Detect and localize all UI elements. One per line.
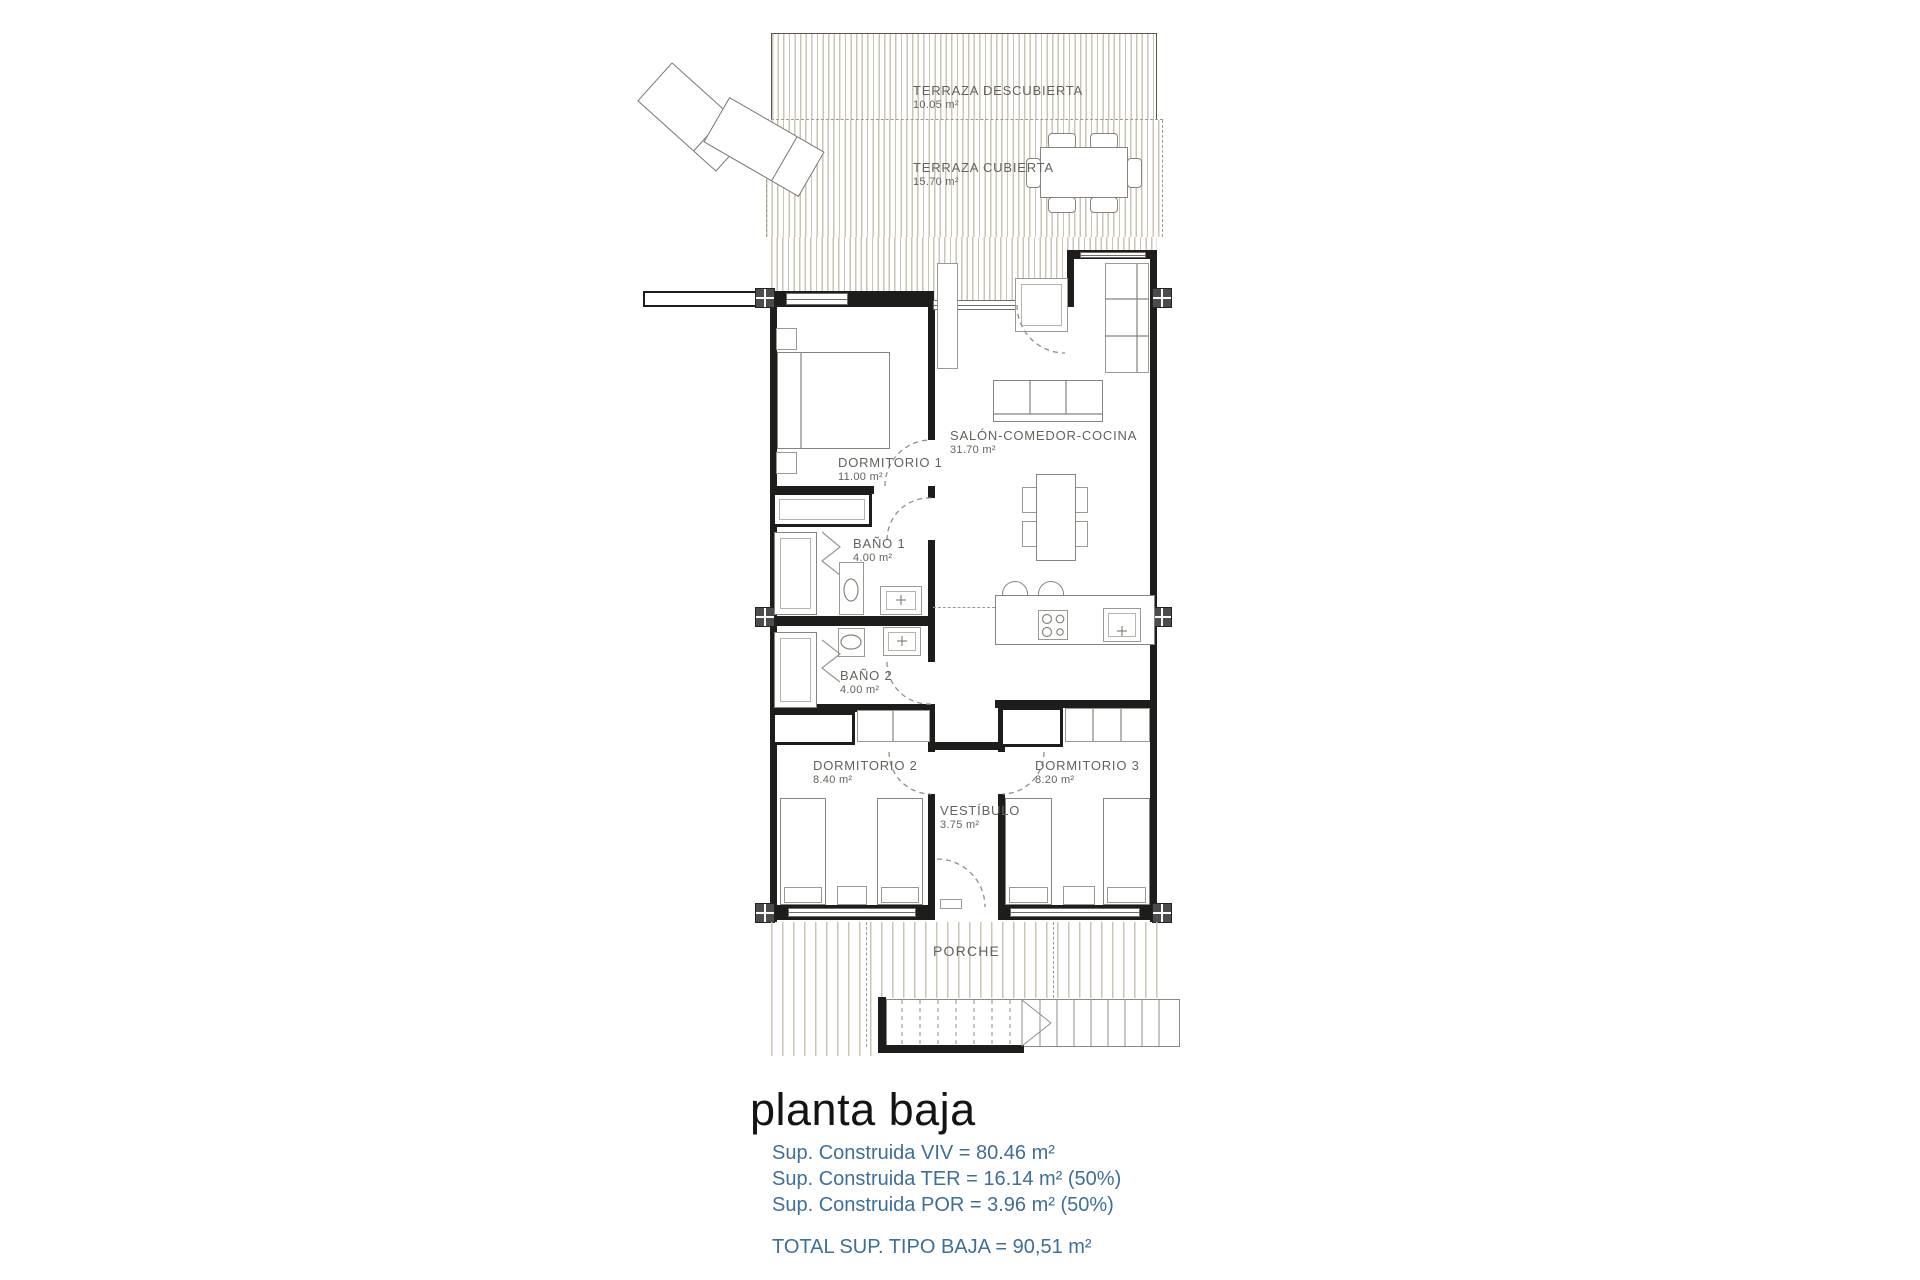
bar-stool xyxy=(1038,581,1064,595)
salon-wall-unit xyxy=(1105,263,1149,373)
porch-hatch xyxy=(771,922,1160,998)
room-name: BAÑO 1 xyxy=(853,536,905,551)
pillar xyxy=(1152,288,1172,308)
terrace-right-dashed xyxy=(1162,120,1163,237)
stair-wall-bottom xyxy=(878,1045,1024,1053)
kitchen-sink-basin xyxy=(1108,613,1136,637)
room-area: 31.70 m² xyxy=(950,444,1137,456)
wall-corridor xyxy=(928,486,935,498)
bar-stool xyxy=(1002,581,1028,595)
pillar xyxy=(1152,607,1172,627)
wall-corridor xyxy=(928,303,935,440)
cabinet-dorm2 xyxy=(857,710,930,742)
total-superficie: TOTAL SUP. TIPO BAJA = 90,51 m² xyxy=(772,1236,1092,1259)
wardrobe-dorm3 xyxy=(1000,707,1063,747)
bed-pillow xyxy=(1009,887,1048,903)
room-name: DORMITORIO 1 xyxy=(838,455,943,470)
room-area: 4.00 m² xyxy=(840,684,892,696)
sofa xyxy=(993,380,1103,422)
room-label-bano1: BAÑO 1 4.00 m² xyxy=(853,536,905,564)
entrance-door-leaf xyxy=(940,899,962,909)
room-area: 15.70 m² xyxy=(913,176,1054,188)
sup-construida-por: Sup. Construida POR = 3.96 m² (50%) xyxy=(772,1194,1114,1217)
wall-right xyxy=(1150,256,1157,922)
room-area: 8.20 m² xyxy=(1035,774,1140,786)
porch-hatch-left xyxy=(771,998,878,1056)
room-name: TERRAZA CUBIERTA xyxy=(913,160,1054,175)
window-dorm2 xyxy=(788,908,916,917)
room-label-terraza-cubierta: TERRAZA CUBIERTA 15.70 m² xyxy=(913,160,1054,188)
pillar xyxy=(1152,903,1172,923)
toilet-bath2 xyxy=(838,628,865,657)
staircase xyxy=(886,999,1180,1047)
window-dorm1 xyxy=(786,293,848,305)
terrace-chair xyxy=(1127,158,1142,188)
terrace-chair xyxy=(1090,197,1118,213)
wardrobe-dorm2 xyxy=(772,712,855,745)
room-name: DORMITORIO 2 xyxy=(813,758,918,773)
room-area: 4.00 m² xyxy=(853,552,905,564)
room-label-dormitorio2: DORMITORIO 2 8.40 m² xyxy=(813,758,918,786)
stair-wall-left xyxy=(878,997,886,1052)
porch-dashed-line xyxy=(1053,922,1054,998)
room-area: 10.05 m² xyxy=(913,99,1083,111)
sink-basin xyxy=(886,591,916,610)
nightstand xyxy=(837,886,867,905)
pillar xyxy=(755,288,775,308)
cabinet-dorm3 xyxy=(1065,708,1150,742)
nightstand xyxy=(1063,886,1095,905)
kitchen-pass-dashed xyxy=(933,607,995,608)
room-name: DORMITORIO 3 xyxy=(1035,758,1140,773)
terrace-parapet xyxy=(643,291,759,307)
plan-title: planta baja xyxy=(750,1084,976,1136)
terrace-chair xyxy=(1048,197,1076,213)
bed-pillow xyxy=(881,887,919,903)
sup-construida-viv: Sup. Construida VIV = 80.46 m² xyxy=(772,1142,1055,1165)
terrace-hatch-lower-left xyxy=(771,237,933,291)
toilet-bath1 xyxy=(839,562,864,615)
room-label-vestibulo: VESTÍBULO 3.75 m² xyxy=(940,803,1020,831)
window-salon xyxy=(1080,252,1146,258)
bed-pillow xyxy=(1107,887,1146,903)
bed-dormitorio1 xyxy=(777,352,890,449)
pillar xyxy=(755,903,775,923)
room-name: SALÓN-COMEDOR-COCINA xyxy=(950,428,1137,443)
room-name: PORCHE xyxy=(933,943,1000,959)
nightstand xyxy=(776,328,797,350)
nightstand xyxy=(776,452,797,474)
salon-table-inner xyxy=(1021,284,1062,326)
room-label-bano2: BAÑO 2 4.00 m² xyxy=(840,668,892,696)
shower-tray xyxy=(780,538,811,609)
shower-tray xyxy=(780,638,811,702)
floor-plan-page: TERRAZA DESCUBIERTA 10.05 m² TERRAZA CUB… xyxy=(0,0,1920,1280)
salon-sideboard xyxy=(937,263,958,369)
room-area: 11.00 m² xyxy=(838,471,943,483)
pillar xyxy=(755,607,775,627)
room-label-salon: SALÓN-COMEDOR-COCINA 31.70 m² xyxy=(950,428,1137,456)
room-area: 3.75 m² xyxy=(940,819,1020,831)
wardrobe-inner xyxy=(779,499,865,520)
room-name: BAÑO 2 xyxy=(840,668,892,683)
window-dorm3 xyxy=(1010,908,1140,917)
sup-construida-ter: Sup. Construida TER = 16.14 m² (50%) xyxy=(772,1168,1121,1191)
room-label-terraza-descubierta: TERRAZA DESCUBIERTA 10.05 m² xyxy=(913,83,1083,111)
room-name: VESTÍBULO xyxy=(940,803,1020,818)
sink-basin xyxy=(888,632,916,651)
wall-bath-divider xyxy=(770,616,934,626)
room-name: TERRAZA DESCUBIERTA xyxy=(913,83,1083,98)
room-label-dormitorio3: DORMITORIO 3 8.20 m² xyxy=(1035,758,1140,786)
lounger-fold-line xyxy=(771,137,797,181)
room-area: 8.40 m² xyxy=(813,774,918,786)
wall-corridor xyxy=(928,540,935,662)
cooktop xyxy=(1038,610,1068,640)
bed-pillow xyxy=(784,887,822,903)
terrace-hatch-lower-right xyxy=(1067,237,1157,250)
folding-door-zigzags xyxy=(822,532,840,682)
porch-dashed-line xyxy=(866,922,867,1047)
dining-table xyxy=(1036,474,1076,561)
terrace-boundary-dashed xyxy=(766,119,1163,120)
room-label-dormitorio1: DORMITORIO 1 11.00 m² xyxy=(838,455,943,483)
wall-corridor xyxy=(928,794,935,920)
room-label-porche: PORCHE xyxy=(933,943,1000,959)
wall-vestibulo-top xyxy=(928,742,1005,750)
